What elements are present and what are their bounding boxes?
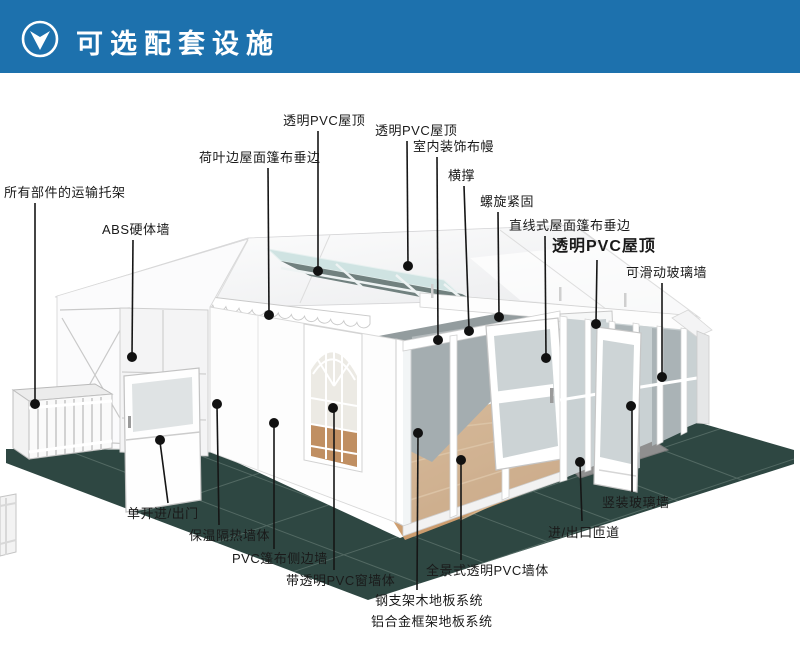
label-pvc-side-wall: PVC篷布侧边墙	[232, 551, 328, 567]
down-arrow-circle-icon	[20, 19, 60, 59]
label-clear-pvc-roof-2: 透明PVC屋顶	[375, 123, 457, 139]
label-vertical-glass-wall: 竖装玻璃墙	[602, 495, 670, 511]
header-bar: 可选配套设施	[0, 0, 800, 73]
label-clear-pvc-roof-1: 透明PVC屋顶	[283, 113, 365, 129]
label-spiral-fastening: 螺旋紧固	[480, 194, 534, 210]
fence-fragment	[0, 494, 16, 556]
label-steel-wood-floor: 钢支架木地板系统	[375, 593, 483, 609]
label-sliding-glass-wall: 可滑动玻璃墙	[626, 265, 707, 281]
label-transport-rack: 所有部件的运输托架	[4, 185, 126, 201]
label-insulated-wall: 保温隔热墙体	[189, 528, 270, 544]
label-pvc-window-wall: 带透明PVC窗墙体	[286, 573, 395, 589]
page-title: 可选配套设施	[76, 22, 280, 61]
label-interior-drapery: 室内装饰布幔	[413, 139, 494, 155]
label-ruffled-roof-hem: 荷叶边屋面篷布垂边	[199, 150, 321, 166]
transport-rack-crate	[13, 384, 112, 459]
label-single-entry-door: 单开进/出门	[127, 506, 199, 522]
label-abs-hard-wall: ABS硬体墙	[102, 222, 170, 238]
label-straight-roof-hem: 直线式屋面篷布垂边	[509, 218, 631, 234]
label-panoramic-pvc-wall: 全景式透明PVC墙体	[426, 563, 549, 579]
label-entry-exit-ramp: 进/出口匝道	[548, 525, 620, 541]
label-cross-brace: 横撑	[448, 168, 475, 184]
tent-diagram-illustration	[0, 0, 800, 653]
label-clear-pvc-roof-big: 透明PVC屋顶	[552, 239, 656, 255]
label-aluminum-floor: 铝合金框架地板系统	[371, 614, 493, 630]
